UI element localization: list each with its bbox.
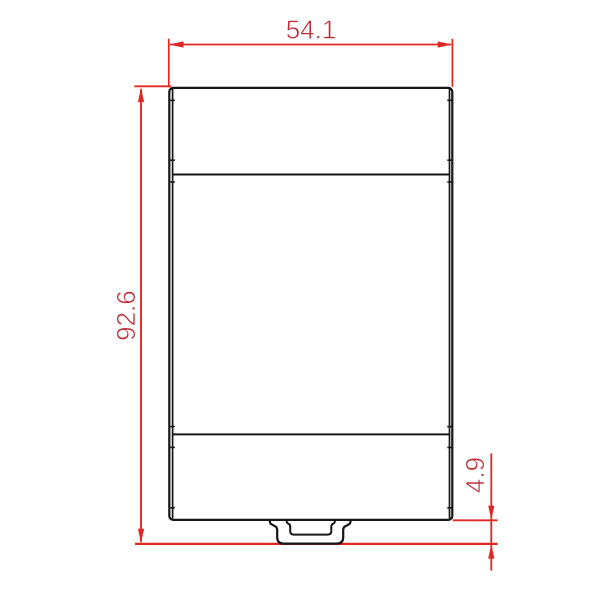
svg-text:54.1: 54.1 [286,15,337,45]
svg-text:92.6: 92.6 [111,290,141,341]
svg-text:4.9: 4.9 [460,457,490,493]
